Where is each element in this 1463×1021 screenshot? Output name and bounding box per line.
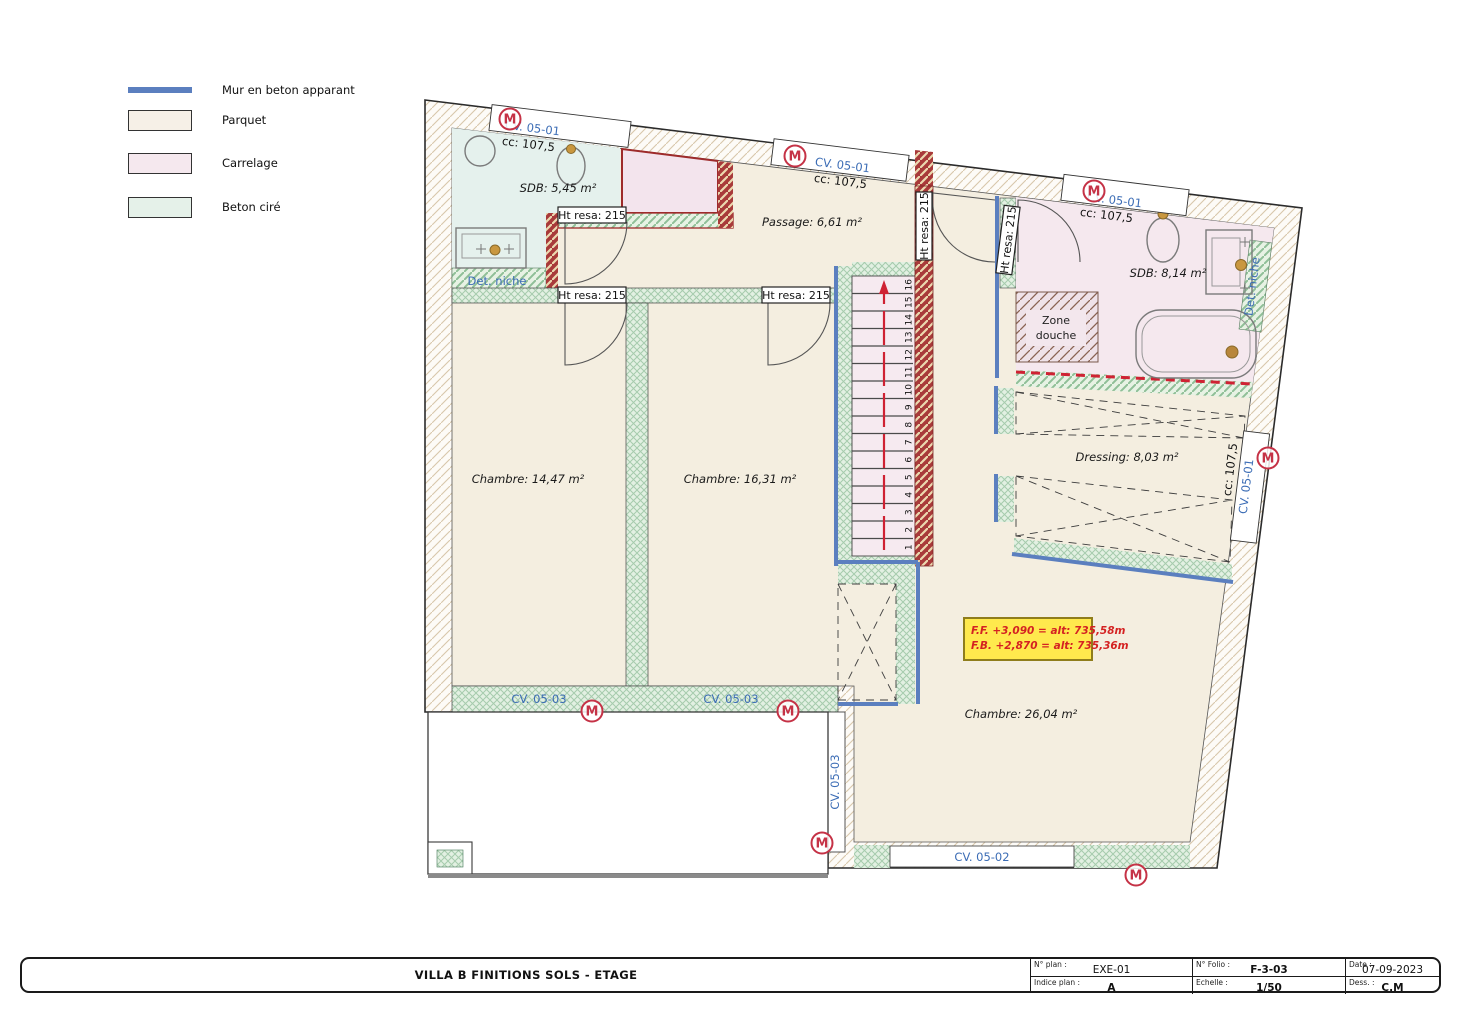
title-block-cell-folio: N° Folio : F-3-03 [1192, 959, 1345, 977]
zone-douche-label: douche [1036, 329, 1077, 342]
marker-m: M [504, 113, 517, 128]
room-sdb2 [997, 196, 1274, 398]
cell-value: 1/50 [1256, 977, 1282, 994]
marker-m: M [789, 150, 802, 165]
cv-label: CV. 05-03 [703, 692, 758, 706]
stair-step-number: 16 [905, 279, 915, 291]
stair-step-number: 12 [905, 349, 915, 360]
stair-step-number: 4 [905, 492, 915, 498]
room-label-chambre2: Chambre: 16,31 m² [684, 472, 797, 486]
cv-label: CV. 05-03 [511, 692, 566, 706]
marker-m: M [1262, 452, 1275, 467]
floor-plan-drawing: 12345678910111213141516 [0, 0, 1463, 1021]
altitude-line1: F.F. +3,090 = alt: 735,58m [971, 625, 1126, 637]
stair-step-number: 2 [905, 527, 915, 533]
title-block-cell-dess: Dess. : C.M [1345, 977, 1439, 994]
cell-label: N° plan : [1034, 960, 1067, 969]
drain-icon [1226, 346, 1238, 358]
marker-m: M [1088, 185, 1101, 200]
room-label-dressing: Dressing: 8,03 m² [1075, 450, 1178, 464]
stair-step-number: 9 [905, 404, 915, 410]
ht-resa-tag: Ht resa: 215 [762, 289, 830, 302]
cell-label: Dess. : [1349, 978, 1375, 987]
stair-step-number: 10 [905, 384, 915, 396]
cell-label: N° Folio : [1196, 960, 1230, 969]
room-label-sdb2: SDB: 8,14 m² [1130, 266, 1207, 280]
cell-label: Date : [1349, 960, 1372, 969]
cell-value: F-3-03 [1250, 959, 1287, 976]
stair-step-number: 8 [905, 422, 915, 428]
cell-value: C.M [1381, 977, 1403, 994]
marker-m: M [586, 705, 599, 720]
title-bar: VILLA B FINITIONS SOLS - ETAGE N° plan :… [20, 957, 1441, 993]
stair-step-number: 13 [905, 332, 915, 343]
title-block-cell-echelle: Echelle : 1/50 [1192, 977, 1345, 994]
marker-m: M [816, 837, 829, 852]
flush-button-icon [567, 145, 576, 154]
ht-resa-tag: Ht resa: 215 [558, 209, 626, 222]
cell-value: EXE-01 [1093, 959, 1131, 976]
det-niche-label: Det. niche [468, 274, 527, 288]
room-label-chambre3: Chambre: 26,04 m² [965, 707, 1078, 721]
stair-step-number: 11 [905, 367, 915, 378]
ht-resa-tag: Ht resa: 215 [918, 192, 931, 260]
void-area [428, 712, 828, 876]
ht-resa-tag: Ht resa: 215 [558, 289, 626, 302]
cell-label: Indice plan : [1034, 978, 1080, 987]
stair-step-number: 14 [905, 314, 915, 326]
stair-step-number: 5 [905, 474, 915, 480]
cv-label: CV. 05-02 [954, 850, 1009, 864]
zone-douche-label: Zone [1042, 314, 1070, 327]
plan-title: VILLA B FINITIONS SOLS - ETAGE [22, 959, 1030, 991]
stair-step-number: 7 [905, 439, 915, 445]
marker-m: M [1130, 869, 1143, 884]
stair-step-number: 1 [905, 544, 915, 550]
stair-step-number: 6 [905, 457, 915, 463]
cv-label: CV. 05-03 [828, 754, 842, 809]
stair-step-number: 3 [905, 509, 915, 515]
altitude-line2: F.B. +2,870 = alt: 735,36m [971, 640, 1129, 652]
room-label-chambre1: Chambre: 14,47 m² [472, 472, 585, 486]
floor-plan-page: Mur en beton apparant Parquet Carrelage … [0, 0, 1463, 1021]
cell-value: A [1107, 977, 1115, 994]
stair-step-number: 15 [905, 297, 915, 308]
title-block-cell-date: Date : 07-09-2023 [1345, 959, 1439, 977]
room-label-passage: Passage: 6,61 m² [762, 215, 862, 229]
room-label-sdb1: SDB: 5,45 m² [520, 181, 597, 195]
title-block-cell-indice: Indice plan : A [1031, 977, 1192, 994]
cell-label: Echelle : [1196, 978, 1228, 987]
title-block: N° plan : EXE-01 N° Folio : F-3-03 Date … [1030, 959, 1439, 991]
marker-m: M [782, 705, 795, 720]
title-block-cell-nplan: N° plan : EXE-01 [1031, 959, 1192, 977]
